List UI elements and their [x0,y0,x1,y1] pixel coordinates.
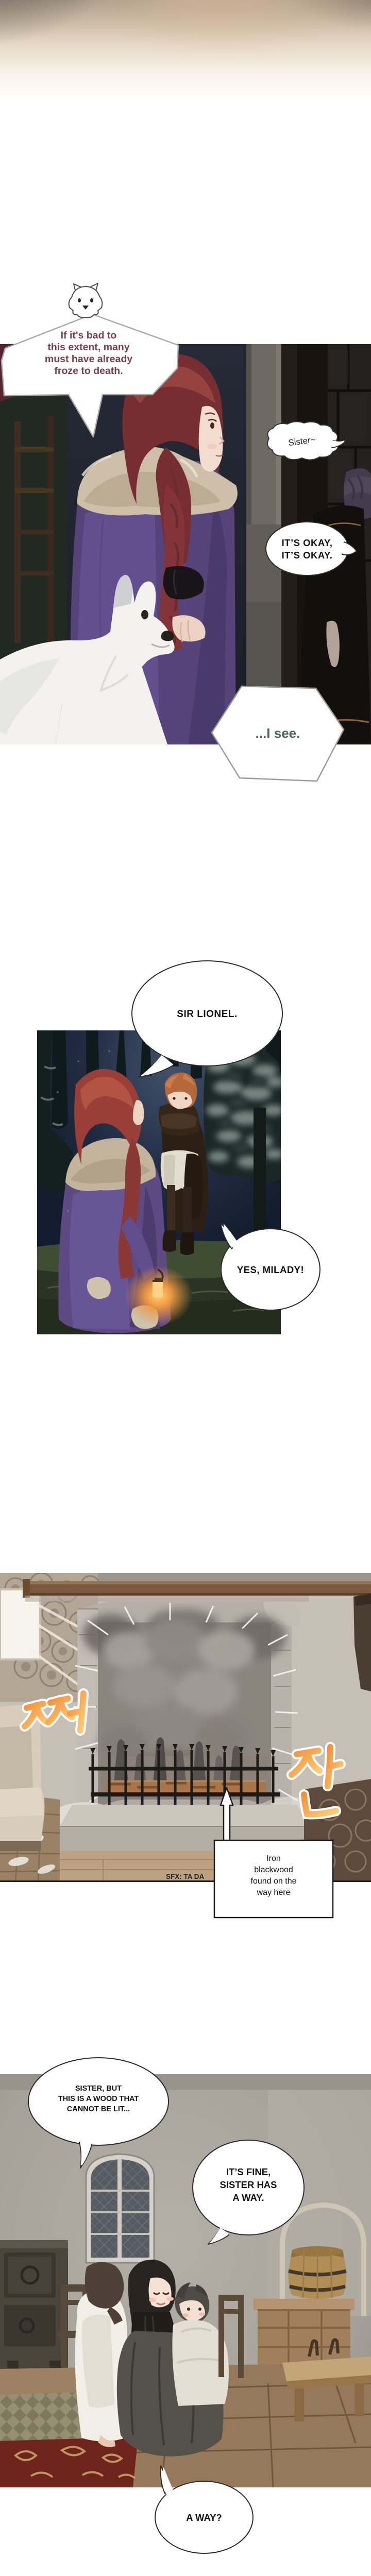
svg-text:IT’S FINE,: IT’S FINE, [226,2166,271,2177]
svg-text:YES, MILADY!: YES, MILADY! [237,1264,304,1275]
svg-text:SISTER HAS: SISTER HAS [220,2179,277,2190]
svg-text:must have already: must have already [45,353,132,365]
svg-text:blackwood: blackwood [254,1866,293,1874]
svg-text:way here: way here [257,1888,291,1897]
svg-text:found on the: found on the [251,1877,297,1886]
svg-text:this extent, many: this extent, many [47,342,129,353]
svg-text:SIR LIONEL.: SIR LIONEL. [177,1009,237,1020]
svg-text:A WAY.: A WAY. [232,2192,264,2203]
svg-text:Iron: Iron [266,1854,281,1863]
svg-text:froze to death.: froze to death. [54,365,123,377]
svg-text:SFX: TA DA: SFX: TA DA [166,1873,204,1880]
svg-text:IT’S OKAY,: IT’S OKAY, [282,537,333,548]
svg-text:IT’S OKAY.: IT’S OKAY. [282,550,333,561]
svg-text:THIS IS A WOOD THAT: THIS IS A WOOD THAT [58,2095,139,2103]
svg-text:If it's bad to: If it's bad to [61,330,117,341]
svg-text:...I see.: ...I see. [256,725,300,741]
svg-text:SISTER, BUT: SISTER, BUT [75,2084,122,2093]
svg-text:CANNOT BE LIT...: CANNOT BE LIT... [67,2105,130,2113]
svg-text:A WAY?: A WAY? [186,2512,222,2523]
